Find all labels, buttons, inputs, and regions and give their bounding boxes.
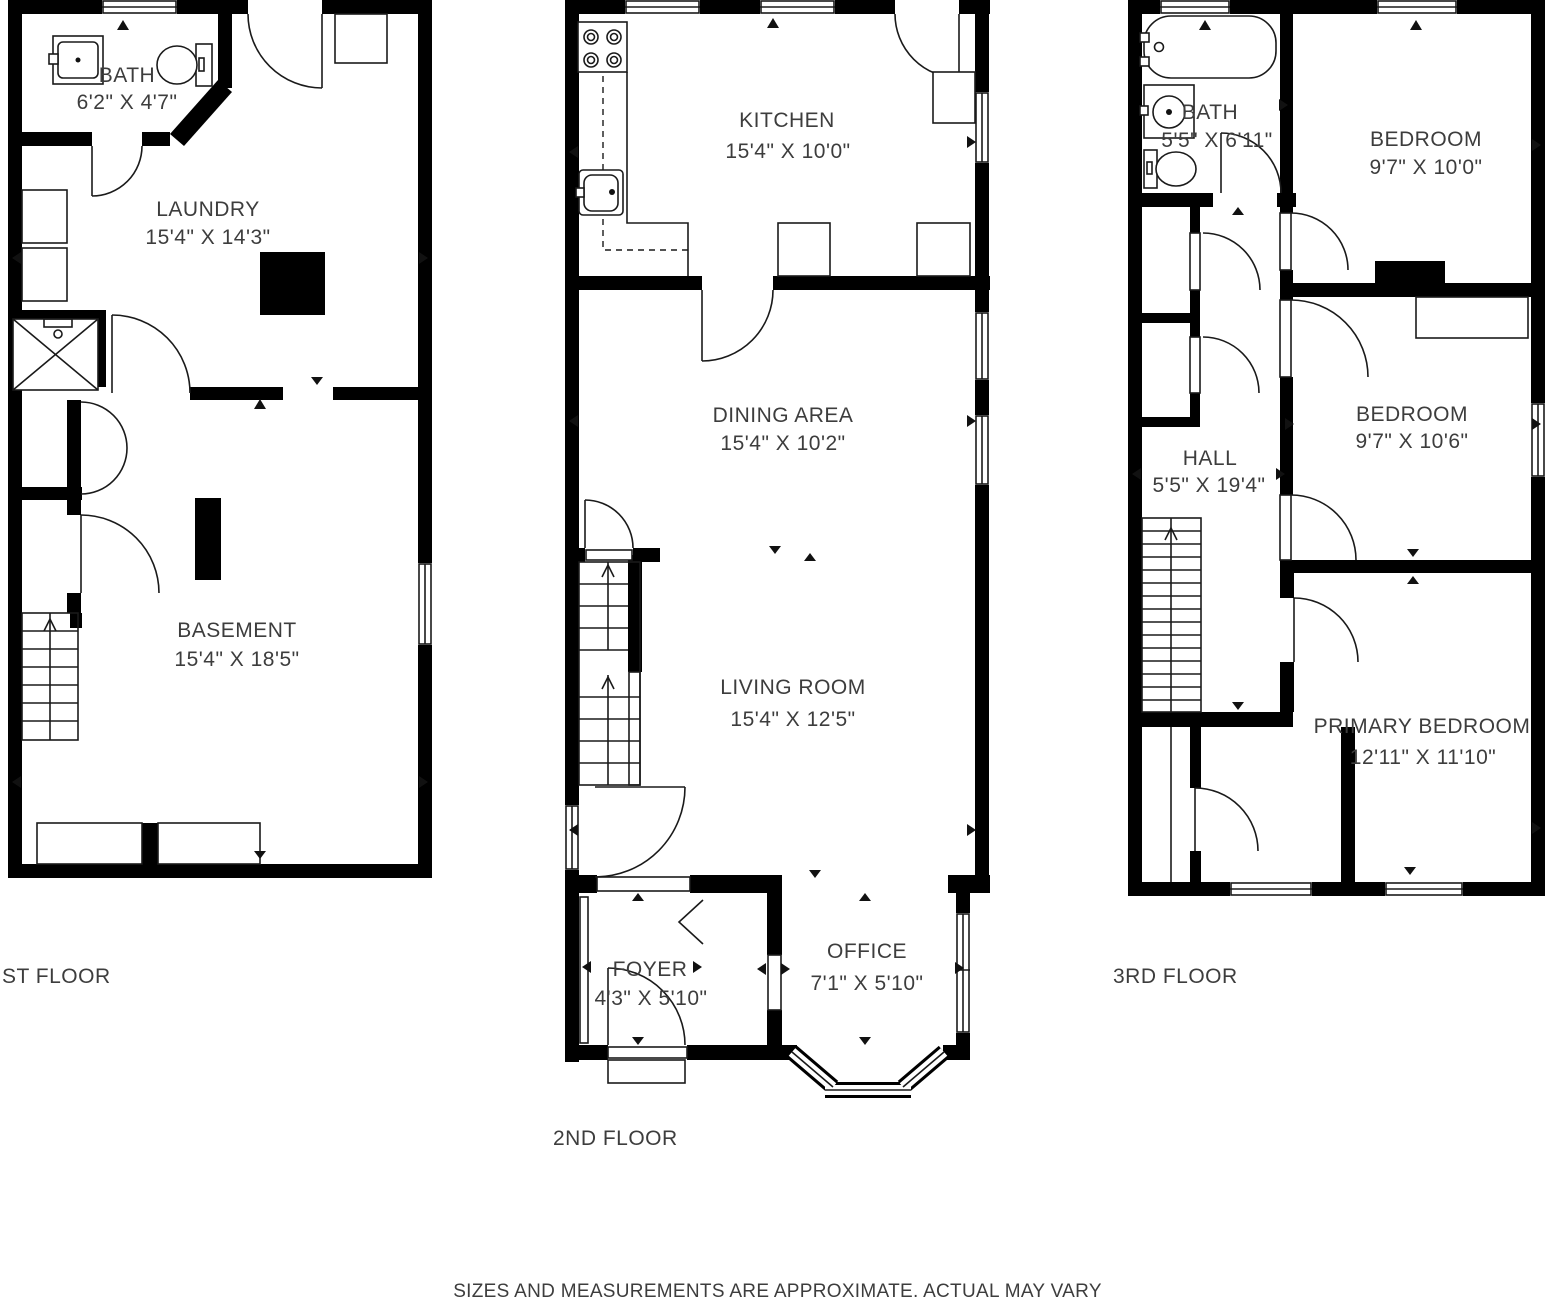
room-label-office: OFFICE — [827, 940, 907, 963]
support-column — [195, 498, 221, 580]
shower-icon — [13, 319, 98, 390]
room-dims-bedroom2: 9'7" X 10'6" — [1356, 430, 1469, 453]
door-arc — [1203, 337, 1259, 393]
room-dims-office: 7'1" X 5'10" — [811, 972, 924, 995]
room-dims-bedroom1: 9'7" X 10'0" — [1370, 156, 1483, 179]
first-floor-windows — [37, 0, 432, 864]
toilet-icon — [1144, 150, 1196, 188]
sink-icon — [49, 36, 103, 84]
cabinet — [933, 72, 975, 123]
counter-island — [778, 223, 830, 276]
front-step — [608, 1060, 685, 1083]
room-label-bedroom2: BEDROOM — [1356, 403, 1468, 426]
room-label-bath: BATH — [99, 64, 155, 87]
room-label-foyer: FOYER — [613, 958, 688, 981]
door-arc — [595, 787, 685, 877]
furniture — [1416, 297, 1528, 338]
basement-window — [37, 823, 142, 864]
stairs-icon — [22, 613, 78, 740]
floor-label-first: ST FLOOR — [2, 965, 111, 989]
door-arc — [112, 315, 190, 393]
washer-icon — [22, 190, 67, 243]
door-arc — [1195, 788, 1258, 851]
disclaimer-text: SIZES AND MEASUREMENTS ARE APPROXIMATE. … — [0, 1281, 1555, 1298]
door-arc — [92, 146, 142, 196]
room-dims-bath: 6'2" X 4'7" — [77, 91, 178, 114]
floorplan-third-floor: BATH 5'5" X 6'11" BEDROOM 9'7" X 10'0" H… — [1128, 0, 1545, 896]
floorplan-sheet: BATH 6'2" X 4'7" LAUNDRY 15'4" X 14'3" B… — [0, 0, 1555, 1298]
room-dims-bath: 5'5" X 6'11" — [1161, 129, 1272, 152]
counter-island — [917, 223, 970, 276]
floor-label-third: 3RD FLOOR — [1113, 965, 1238, 989]
stove-icon — [578, 22, 627, 72]
room-label-living: LIVING ROOM — [720, 676, 866, 699]
door-arc — [81, 402, 127, 448]
floor-label-second: 2ND FLOOR — [553, 1127, 678, 1151]
door-arc — [81, 448, 127, 494]
sink-icon — [576, 170, 623, 215]
room-label-bath: BATH — [1182, 101, 1238, 124]
dryer-icon — [22, 248, 67, 301]
room-dims-kitchen: 15'4" X 10'0" — [725, 140, 850, 163]
floorplan-first-floor: BATH 6'2" X 4'7" LAUNDRY 15'4" X 14'3" B… — [8, 0, 432, 878]
room-label-laundry: LAUNDRY — [156, 198, 259, 221]
room-label-basement: BASEMENT — [177, 619, 297, 642]
cabinet — [335, 14, 387, 63]
room-label-hall: HALL — [1183, 447, 1238, 470]
room-dims-living: 15'4" X 12'5" — [730, 708, 855, 731]
door-arc — [81, 515, 159, 593]
room-label-primary: PRIMARY BEDROOM — [1314, 715, 1531, 738]
door-arc — [1291, 213, 1348, 270]
first-floor-labels: BATH 6'2" X 4'7" LAUNDRY 15'4" X 14'3" B… — [77, 64, 300, 671]
room-dims-foyer: 4'3" X 5'10" — [595, 987, 708, 1010]
room-dims-primary: 12'11" X 11'10" — [1350, 746, 1496, 769]
closet-bifold-door — [679, 900, 703, 944]
bay-window — [792, 1052, 944, 1090]
door-arc — [585, 500, 633, 548]
first-floor-walls — [8, 0, 432, 878]
door-arc — [248, 14, 322, 88]
door-arc — [702, 290, 773, 361]
door-arc — [895, 14, 959, 78]
room-label-bedroom1: BEDROOM — [1370, 128, 1482, 151]
floorplan-second-floor: KITCHEN 15'4" X 10'0" DINING AREA 15'4" … — [565, 0, 990, 1100]
room-dims-dining: 15'4" X 10'2" — [720, 432, 845, 455]
door-arc — [1291, 495, 1356, 560]
toilet-icon — [157, 44, 212, 86]
furnace-icon — [260, 252, 325, 315]
door-arc — [1291, 300, 1368, 377]
room-label-kitchen: KITCHEN — [739, 109, 835, 132]
room-dims-hall: 5'5" X 19'4" — [1153, 474, 1266, 497]
stairs-icon — [1142, 518, 1201, 712]
door-arc — [1294, 598, 1358, 662]
basement-window — [158, 823, 260, 864]
door-arc — [1203, 233, 1260, 290]
room-dims-laundry: 15'4" X 14'3" — [145, 226, 270, 249]
room-dims-basement: 15'4" X 18'5" — [174, 648, 299, 671]
room-label-dining: DINING AREA — [713, 404, 854, 427]
